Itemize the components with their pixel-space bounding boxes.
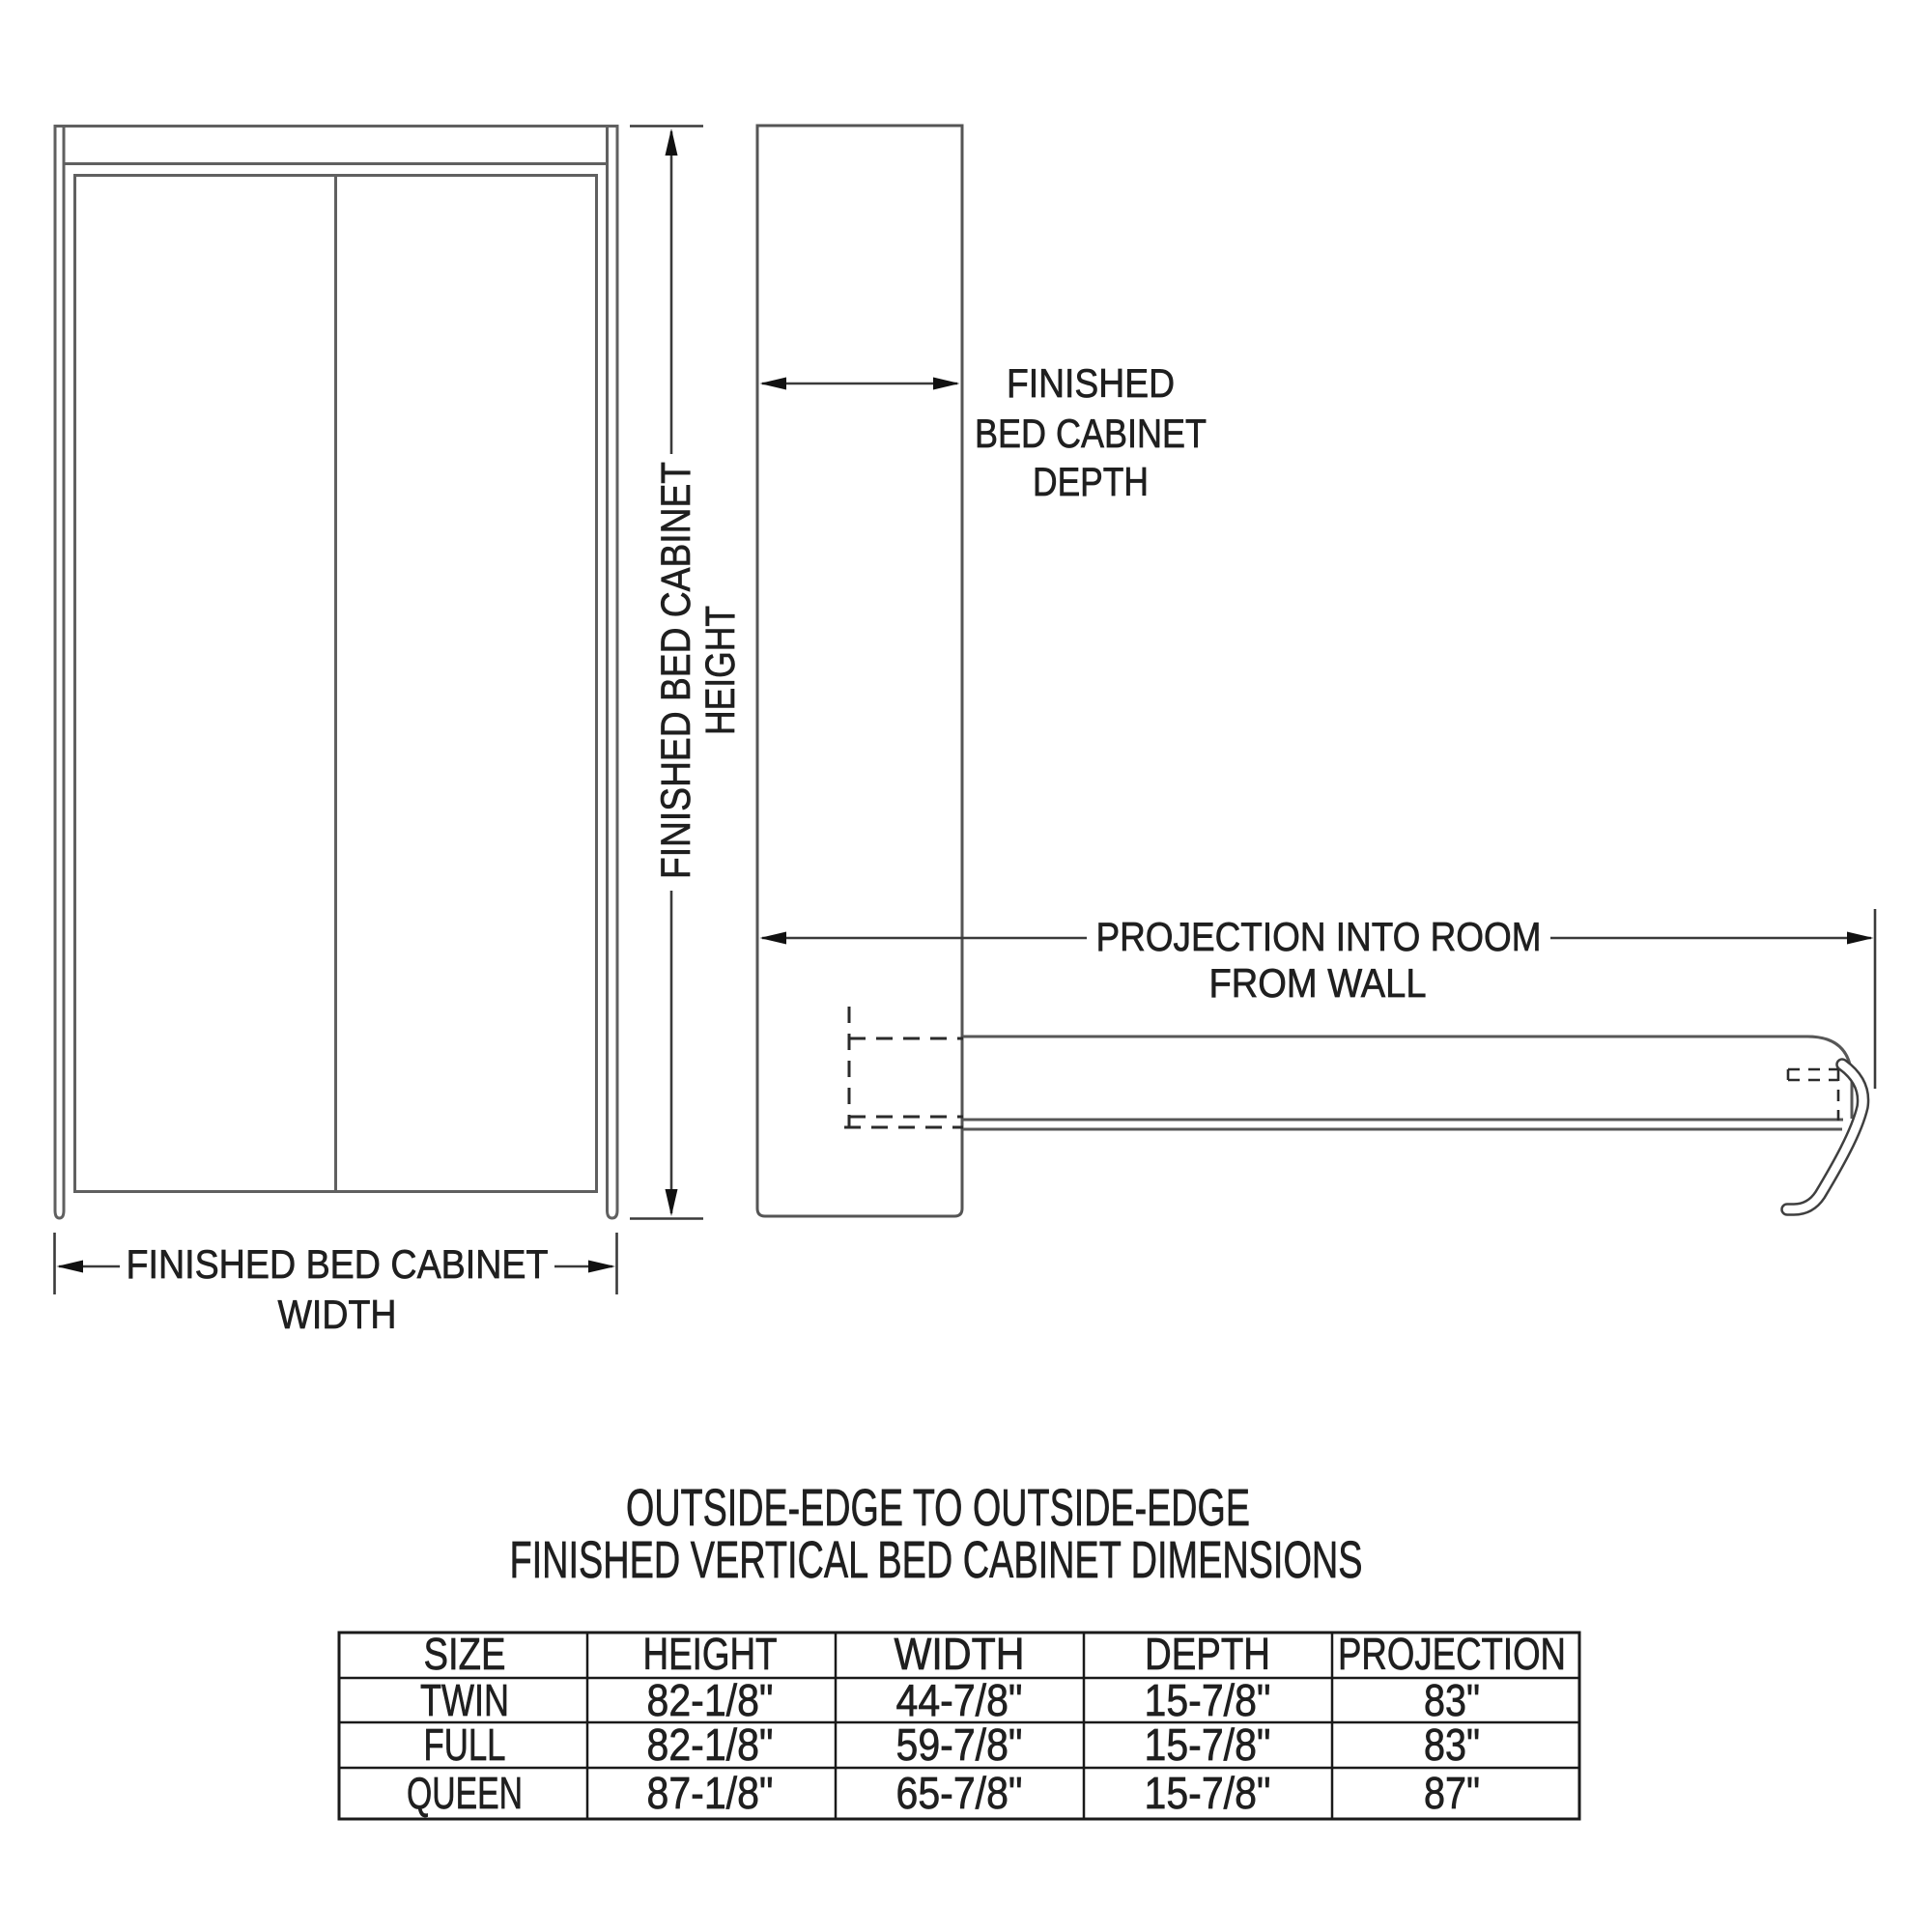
svg-text:15-7/8": 15-7/8" xyxy=(1145,1768,1271,1818)
svg-text:HEIGHT: HEIGHT xyxy=(697,606,744,735)
svg-text:DEPTH: DEPTH xyxy=(1145,1629,1270,1679)
svg-text:82-1/8": 82-1/8" xyxy=(647,1675,774,1725)
svg-text:OUTSIDE-EDGE TO OUTSIDE-EDGE: OUTSIDE-EDGE TO OUTSIDE-EDGE xyxy=(626,1479,1250,1537)
svg-text:87-1/8": 87-1/8" xyxy=(647,1768,774,1818)
svg-text:HEIGHT: HEIGHT xyxy=(643,1629,778,1679)
svg-text:82-1/8": 82-1/8" xyxy=(647,1719,774,1770)
svg-text:PROJECTION INTO ROOM: PROJECTION INTO ROOM xyxy=(1096,914,1542,959)
svg-text:83": 83" xyxy=(1424,1719,1480,1770)
svg-text:WIDTH: WIDTH xyxy=(895,1629,1025,1679)
svg-text:44-7/8": 44-7/8" xyxy=(896,1675,1023,1725)
svg-text:FULL: FULL xyxy=(424,1719,506,1770)
svg-text:FROM WALL: FROM WALL xyxy=(1209,960,1427,1006)
svg-text:DEPTH: DEPTH xyxy=(1033,459,1149,504)
svg-text:FINISHED BED CABINET: FINISHED BED CABINET xyxy=(127,1241,549,1287)
svg-text:87": 87" xyxy=(1424,1768,1480,1818)
svg-text:QUEEN: QUEEN xyxy=(407,1768,523,1818)
svg-text:65-7/8": 65-7/8" xyxy=(896,1768,1023,1818)
svg-text:FINISHED BED CABINET: FINISHED BED CABINET xyxy=(653,462,699,879)
svg-text:83": 83" xyxy=(1424,1675,1480,1725)
svg-text:FINISHED: FINISHED xyxy=(1007,360,1175,406)
svg-text:BED CABINET: BED CABINET xyxy=(975,411,1207,456)
svg-text:SIZE: SIZE xyxy=(424,1629,506,1679)
svg-text:15-7/8": 15-7/8" xyxy=(1145,1675,1271,1725)
svg-text:WIDTH: WIDTH xyxy=(278,1292,397,1337)
svg-text:59-7/8": 59-7/8" xyxy=(896,1719,1023,1770)
svg-text:TWIN: TWIN xyxy=(420,1675,509,1725)
svg-text:PROJECTION: PROJECTION xyxy=(1338,1629,1566,1679)
svg-text:15-7/8": 15-7/8" xyxy=(1145,1719,1271,1770)
svg-text:FINISHED VERTICAL BED CABINET: FINISHED VERTICAL BED CABINET DIMENSIONS xyxy=(510,1531,1363,1589)
